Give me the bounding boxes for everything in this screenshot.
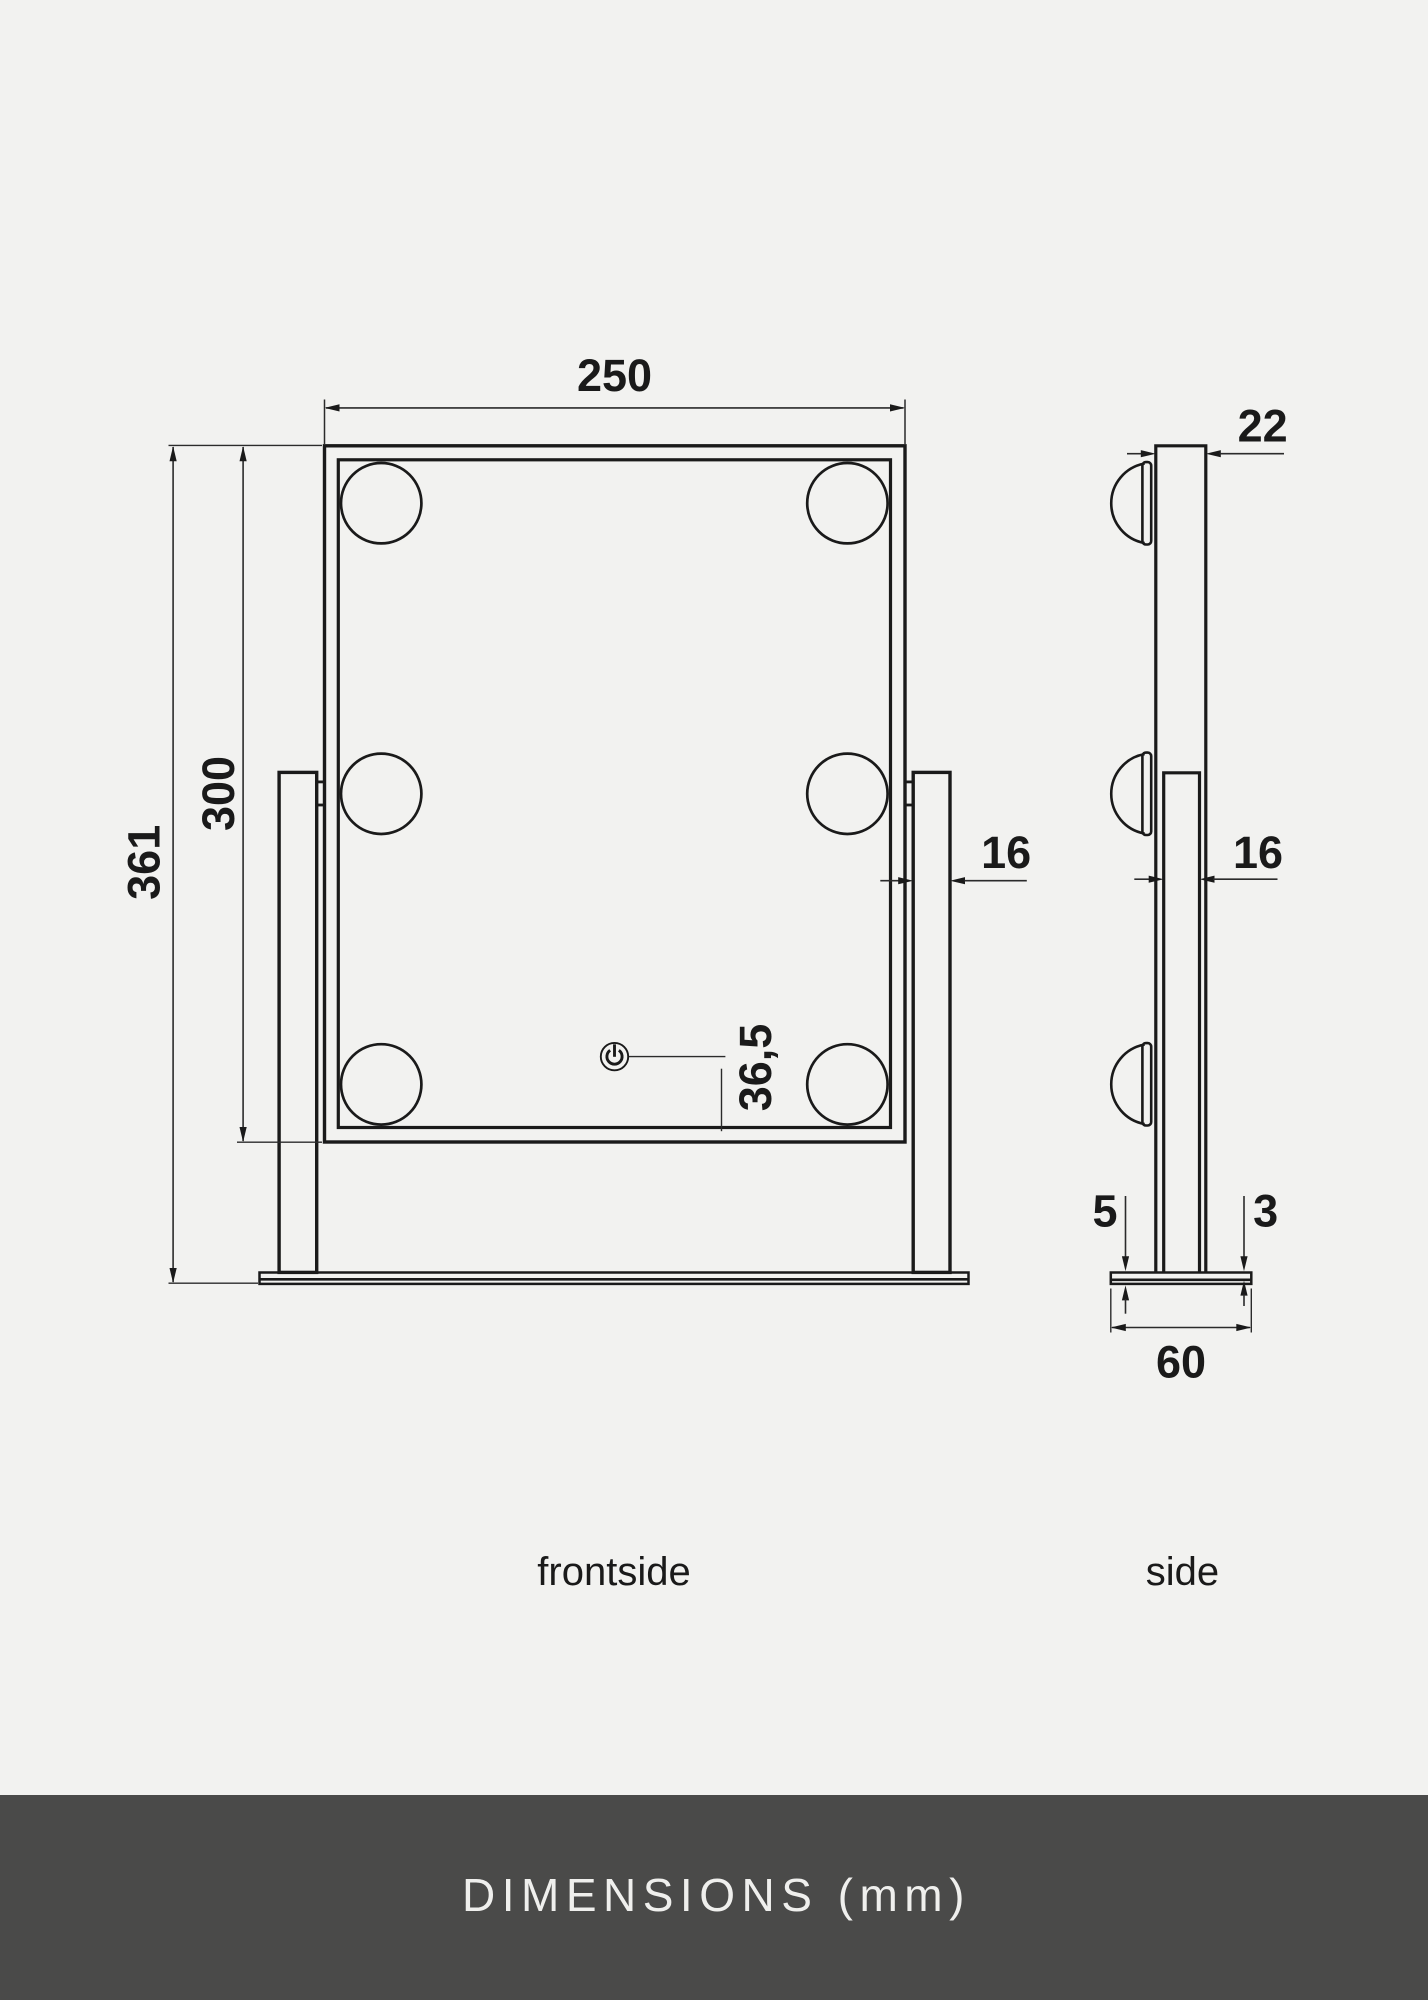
svg-text:16: 16 <box>1233 827 1283 878</box>
svg-text:60: 60 <box>1156 1337 1206 1388</box>
svg-text:361: 361 <box>119 825 170 900</box>
svg-text:16: 16 <box>981 827 1031 878</box>
svg-text:side: side <box>1146 1550 1219 1594</box>
svg-text:250: 250 <box>577 350 652 401</box>
svg-text:22: 22 <box>1238 400 1288 451</box>
svg-text:frontside: frontside <box>537 1550 690 1594</box>
svg-text:300: 300 <box>193 756 244 831</box>
svg-text:DIMENSIONS (mm): DIMENSIONS (mm) <box>462 1869 971 1921</box>
svg-text:36,5: 36,5 <box>730 1024 781 1112</box>
svg-text:3: 3 <box>1253 1186 1278 1237</box>
svg-text:5: 5 <box>1092 1186 1117 1237</box>
